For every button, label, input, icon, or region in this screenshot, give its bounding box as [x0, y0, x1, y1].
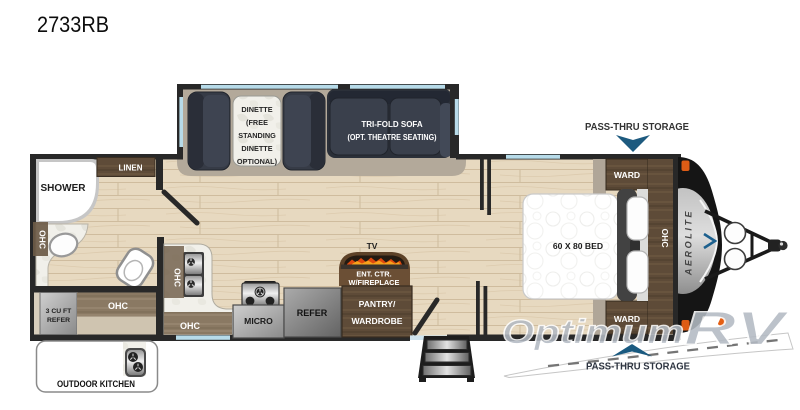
svg-text:REFER: REFER — [47, 317, 70, 324]
svg-text:SHOWER: SHOWER — [41, 183, 87, 194]
svg-text:OHC: OHC — [38, 230, 48, 249]
svg-text:AEROLITE: AEROLITE — [684, 209, 694, 276]
svg-text:WARDROBE: WARDROBE — [351, 316, 402, 326]
svg-text:(FREE: (FREE — [246, 118, 268, 127]
svg-text:PANTRY/: PANTRY/ — [359, 299, 396, 309]
svg-text:OUTDOOR KITCHEN: OUTDOOR KITCHEN — [57, 379, 135, 389]
svg-text:TV: TV — [367, 241, 378, 251]
svg-text:Optimum: Optimum — [502, 314, 684, 352]
svg-text:STANDING: STANDING — [238, 131, 276, 140]
svg-text:60 X 80 BED: 60 X 80 BED — [553, 241, 603, 251]
svg-text:DINETTE: DINETTE — [241, 105, 272, 114]
svg-text:2733RB: 2733RB — [37, 12, 109, 37]
svg-text:PASS-THRU STORAGE: PASS-THRU STORAGE — [586, 362, 690, 373]
svg-text:OPTIONAL): OPTIONAL) — [237, 157, 278, 166]
svg-text:DINETTE: DINETTE — [241, 144, 272, 153]
svg-text:WARD: WARD — [614, 170, 640, 180]
svg-text:MICRO: MICRO — [244, 316, 273, 326]
svg-text:OHC: OHC — [660, 228, 670, 247]
svg-text:TRI-FOLD SOFA: TRI-FOLD SOFA — [361, 120, 423, 129]
svg-text:OHC: OHC — [108, 301, 129, 311]
svg-text:LINEN: LINEN — [119, 164, 143, 173]
svg-text:REFER: REFER — [297, 308, 328, 318]
svg-text:RV: RV — [684, 302, 790, 355]
svg-text:PASS-THRU STORAGE: PASS-THRU STORAGE — [585, 122, 689, 133]
svg-text:OHC: OHC — [180, 321, 201, 331]
svg-text:3 CU FT: 3 CU FT — [46, 308, 73, 315]
svg-text:(OPT. THEATRE SEATING): (OPT. THEATRE SEATING) — [348, 133, 437, 142]
svg-text:OHC: OHC — [173, 268, 183, 287]
